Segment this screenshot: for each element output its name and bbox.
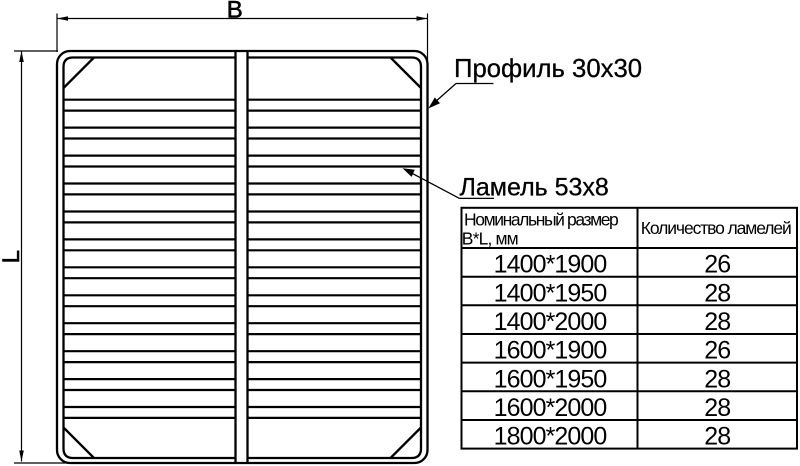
svg-text:1600*1900: 1600*1900 <box>494 337 607 365</box>
svg-text:28: 28 <box>704 365 730 393</box>
svg-text:28: 28 <box>704 308 730 336</box>
svg-text:26: 26 <box>704 337 730 365</box>
svg-text:B: B <box>227 0 243 24</box>
svg-text:B*L, мм: B*L, мм <box>462 228 518 248</box>
svg-text:28: 28 <box>704 423 730 451</box>
svg-text:1400*1950: 1400*1950 <box>494 279 607 307</box>
svg-text:Ламель 53x8: Ламель 53x8 <box>460 174 609 202</box>
svg-text:1800*2000: 1800*2000 <box>494 423 607 451</box>
svg-text:1600*2000: 1600*2000 <box>494 394 607 422</box>
svg-text:1600*1950: 1600*1950 <box>494 365 607 393</box>
svg-text:Количество ламелей: Количество ламелей <box>641 218 791 238</box>
svg-text:28: 28 <box>704 394 730 422</box>
svg-text:26: 26 <box>704 251 730 279</box>
svg-text:Профиль 30x30: Профиль 30x30 <box>454 55 642 83</box>
svg-text:1400*2000: 1400*2000 <box>494 308 607 336</box>
svg-text:1400*1900: 1400*1900 <box>494 251 607 279</box>
svg-text:Номинальный размер: Номинальный размер <box>464 209 618 229</box>
svg-text:28: 28 <box>704 279 730 307</box>
